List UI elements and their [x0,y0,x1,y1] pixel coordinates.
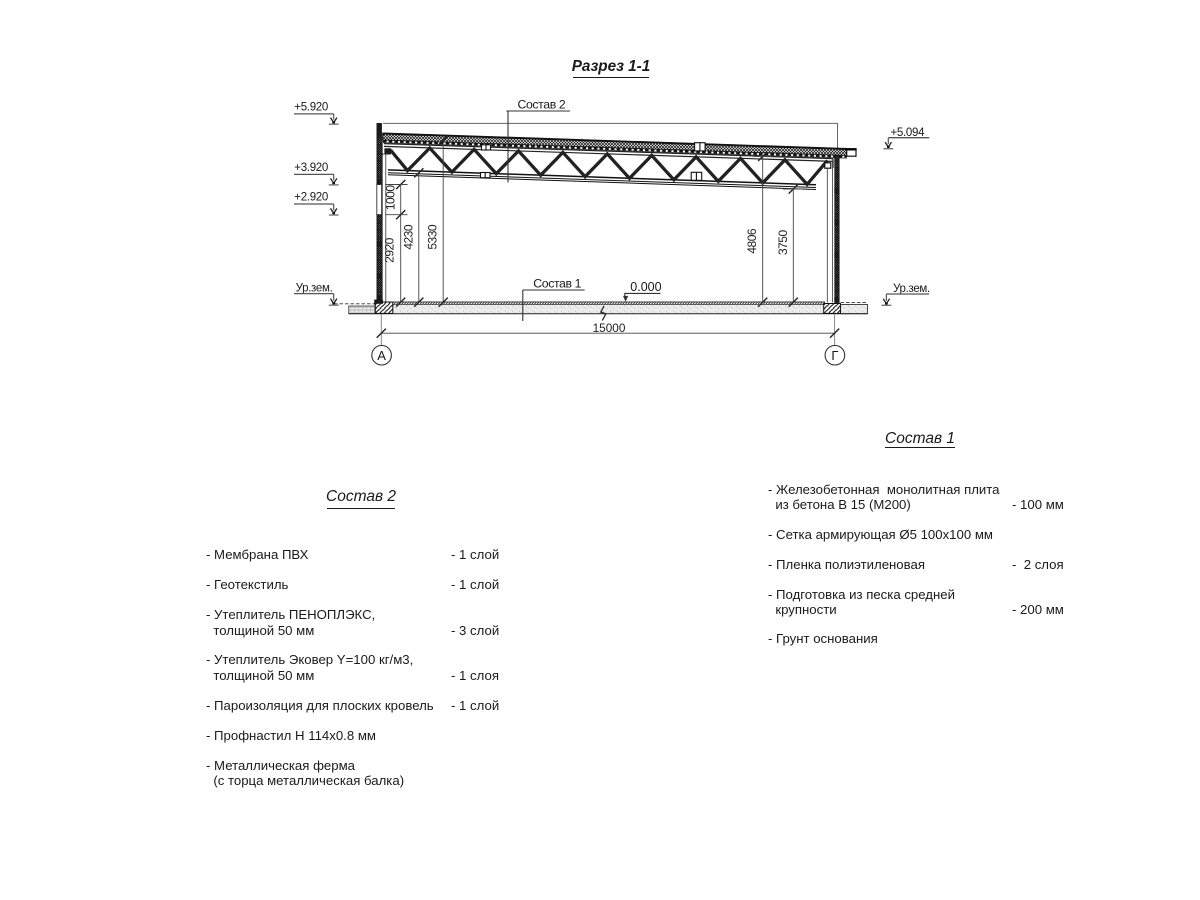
svg-text:5330: 5330 [426,224,440,250]
svg-text:Ур.зем.: Ур.зем. [296,282,333,294]
svg-text:15000: 15000 [593,321,626,335]
svg-text:3750: 3750 [776,230,790,256]
svg-text:+3.920: +3.920 [294,162,328,174]
svg-text:Состав 1: Состав 1 [533,277,581,291]
svg-text:1000: 1000 [383,185,397,211]
svg-text:4806: 4806 [745,228,759,254]
svg-text:+5.920: +5.920 [294,102,328,114]
svg-text:Состав 2: Состав 2 [518,98,566,112]
svg-text:2920: 2920 [383,237,397,263]
svg-text:Ур.зем.: Ур.зем. [893,283,930,295]
svg-text:+2.920: +2.920 [294,192,328,204]
svg-text:4230: 4230 [401,224,415,250]
svg-text:Г: Г [831,348,838,363]
svg-text:А: А [377,348,386,363]
svg-text:0.000: 0.000 [630,280,661,294]
